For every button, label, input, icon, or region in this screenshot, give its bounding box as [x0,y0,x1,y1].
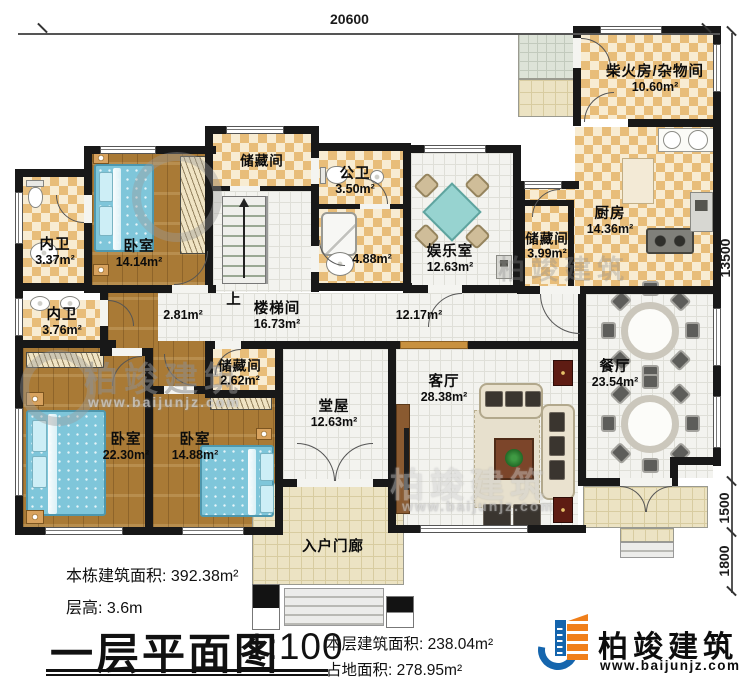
watermark-ring [132,152,222,242]
window [45,527,123,535]
porch-column-right [386,596,414,628]
doorway-lintel [400,341,468,349]
dimension-line-top [18,33,720,35]
wardrobe-bedroom3 [210,396,272,410]
pillow [32,420,47,452]
room-label-main-hall: 堂屋12.63m² [311,399,358,429]
wall [403,285,521,293]
side-cabinet [553,497,573,523]
room-label-entertainment: 娱乐室12.63m² [427,244,474,274]
room-label-storage2: 储藏间2.62m² [218,358,262,387]
pillow [260,485,274,513]
stair-arrow-head [239,198,249,207]
chair-icon [642,374,659,389]
pillow [99,172,113,202]
porch-north [518,33,574,79]
room-label-bedroom2: 卧室22.30m² [103,432,150,462]
toilet-icon [28,187,43,208]
stair-divider [266,196,268,284]
bed-sheet [48,414,57,514]
wall [15,283,92,291]
room-label-firewood: 柴火房/杂物间10.60m² [606,64,704,94]
door-gap [112,348,142,356]
hall-area-small: 2.81m² [163,308,203,322]
floor-plan-canvas: 内卫3.37m² 卧室14.14m² 储藏间 公卫3.50m² 4.88m² 娱… [0,0,750,691]
wall [15,169,92,177]
wall [275,341,396,349]
door-gap [230,186,260,191]
wall [211,186,311,191]
title-underline [46,669,328,676]
chair-icon [685,322,700,339]
room-label-kitchen: 厨房14.36m² [587,206,634,236]
door-gap [428,285,462,293]
nightstand [256,428,272,440]
room-label-storage-kitchen: 储藏间3.99m² [525,231,569,260]
bed-sheet [113,168,121,250]
wall [517,181,525,294]
nightstand [93,264,109,276]
logo-building-icon [567,614,588,660]
window [524,181,562,189]
window [713,308,721,366]
company-logo: 柏竣建筑 www.baijunjz.com [538,614,743,684]
chair-icon [601,322,616,339]
door-gap [311,158,319,184]
door-gap [311,246,319,272]
sofa-right [541,404,575,500]
sofa-cushion [549,412,565,432]
building-area-note: 本栋建筑面积: 392.38m² [66,562,239,586]
window [100,146,156,154]
kitchen-exterior-notch [517,118,575,184]
room-label-bedroom1: 卧室14.14m² [116,239,163,269]
wall [628,119,721,127]
sink-basin [688,130,708,150]
dimension-right-mid: 1500 [716,486,732,530]
chair-icon [601,415,616,432]
room-label-bedroom3: 卧室14.88m² [172,432,219,462]
chair-icon [642,458,659,473]
room-label-bath1: 内卫3.37m² [35,237,75,267]
wall [311,283,412,291]
door-gap [573,38,581,68]
pillow [99,206,113,236]
porch-north-lower [518,79,574,117]
window [15,192,23,244]
door-gap [215,341,241,349]
window [15,408,23,496]
stair-arrow [243,206,245,278]
stove-icon [646,228,694,254]
room-label-living: 客厅28.38m² [421,374,468,404]
wall [311,143,411,151]
floor-corridor [155,293,578,341]
toilet-tank [26,180,44,187]
porch-se-steps [620,542,674,558]
side-cabinet [553,360,573,386]
door-gap [84,195,92,223]
window [713,44,721,92]
window [182,527,244,535]
room-label-washroom: 4.88m² [352,252,392,266]
floor-height-note: 层高: 3.6m [66,594,142,618]
round-dining-table [621,395,679,453]
door-gap [164,386,194,394]
door-gap [172,285,208,293]
round-dining-table [621,302,679,360]
room-label-stairwell: 楼梯间16.73m² [254,301,301,331]
stairs-up-label: 上 [226,292,242,308]
logo-website: www.baijunjz.com [600,658,741,673]
door-gap [540,286,580,294]
footprint-area-note: 占地面积: 278.95m² [326,658,462,680]
sofa-cushion [485,391,503,407]
room-label-public-bath: 公卫3.50m² [335,166,375,196]
dimension-right-bottom: 1800 [716,539,732,583]
door-gap [620,478,672,486]
door-gap [100,300,108,326]
sofa-cushion [525,391,541,407]
sofa-top [479,383,543,419]
kitchen-appliance [690,192,713,232]
pillow [32,456,47,488]
hall-area-main: 12.17m² [396,308,443,322]
tv-icon [404,428,409,490]
logo-tower-icon [555,620,566,656]
wall [205,390,283,398]
sofa-cushion [505,391,523,407]
chair-icon [685,415,700,432]
window [424,145,486,153]
room-label-storage-top: 储藏间 [240,153,284,168]
window [226,126,284,134]
sink-basin [663,131,681,149]
floor-area-note: 本层建筑面积: 238.04m² [326,632,493,654]
sofa-cushion [549,460,565,480]
dimension-top-width: 20600 [330,11,369,27]
kitchen-island [622,158,654,204]
dimension-tick [37,23,48,34]
entry-porch-steps [284,588,384,626]
water-heater [496,255,512,279]
room-label-entry-porch: 入户门廊 [302,539,364,555]
dimension-right-total: 13500 [717,233,733,283]
plant-icon [505,449,523,467]
wall [388,341,396,533]
wall [275,341,283,535]
door-gap [360,204,390,209]
window [15,298,23,336]
wall [403,143,411,293]
watermark-ring [20,350,96,426]
bed-bedroom2 [26,410,106,516]
porch-se-step-landing [620,528,674,542]
room-label-dining: 餐厅23.54m² [592,359,639,389]
room-label-bath2: 内卫3.76m² [42,307,82,337]
window [420,525,528,533]
bed-sheet [248,449,256,515]
sofa-cushion [549,436,565,456]
nightstand [26,510,44,524]
pillow [260,453,274,481]
window [713,396,721,448]
